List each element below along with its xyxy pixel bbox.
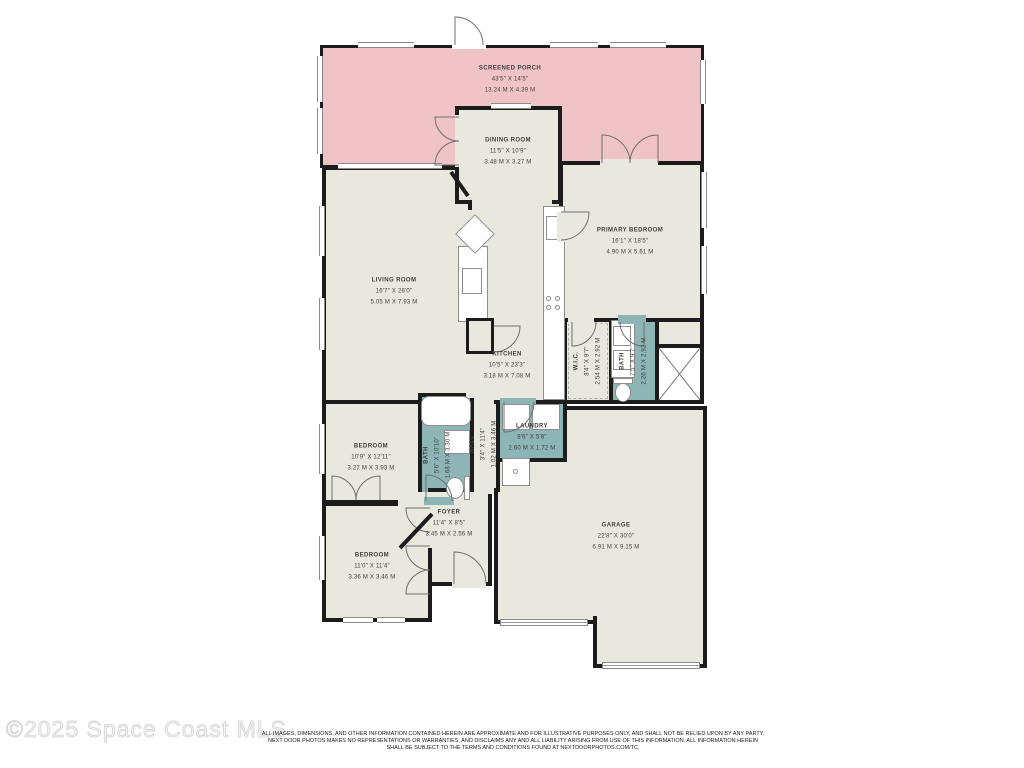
water-heater-valve: [513, 469, 518, 474]
label-dining-room: DINING ROOM 11'5" X 10'9" 3.48 M X 3.27 …: [438, 137, 578, 168]
label-garage: GARAGE 22'8" X 30'0" 6.91 M X 9.15 M: [546, 522, 686, 553]
disclaimer-line1: ALL IMAGES, DIMENSIONS, AND OTHER INFORM…: [253, 731, 773, 738]
window: [319, 206, 325, 256]
window: [358, 42, 414, 48]
window: [317, 56, 323, 102]
doorway-front-door: [452, 580, 486, 588]
label-primary-bath: BATH 7'5" X 9'7" 2.26 M X 2.92 M: [619, 316, 650, 406]
label-hall: HALL 3'4" X 11'4" 1.02 M X 3.46 M: [469, 399, 500, 489]
window: [550, 42, 598, 48]
island-sink: [462, 268, 482, 294]
window: [701, 246, 707, 294]
disclaimer-line2: NEXT DOOR PHOTOS MAKES NO REPRESENTATION…: [253, 738, 773, 745]
pantry-closet: [466, 318, 494, 354]
window: [491, 103, 531, 109]
disclaimer-text: ALL IMAGES, DIMENSIONS, AND OTHER INFORM…: [253, 731, 773, 752]
disclaimer-line3: SHALL BE SUBJECT TO THE TERMS AND CONDIT…: [253, 745, 773, 752]
cooktop-burner: [555, 305, 560, 310]
cooktop-burner: [546, 305, 551, 310]
label-foyer: FOYER 11'4" X 8'5" 3.45 M X 2.56 M: [379, 509, 519, 540]
label-living-room: LIVING ROOM 16'7" X 26'0" 5.05 M X 7.93 …: [324, 277, 464, 308]
window: [701, 172, 707, 228]
window: [700, 60, 706, 104]
opening-dining-kitchen: [472, 196, 552, 208]
shower-stall: [655, 344, 704, 404]
doorway-laundry: [500, 398, 536, 404]
window: [377, 617, 405, 623]
label-screened-porch: SCREENED PORCH 43'5" X 14'5" 13.24 M X 4…: [440, 65, 580, 96]
cooktop-burner: [546, 296, 551, 301]
garage-door: [602, 662, 700, 669]
label-kitchen: KITCHEN 10'5" X 23'3" 3.18 M X 7.08 M: [437, 351, 577, 382]
doorway-primary-porch: [600, 159, 658, 167]
window: [317, 108, 323, 154]
window: [338, 163, 442, 169]
doorway-bedroom1: [398, 498, 418, 506]
opening-garage-sections: [597, 612, 703, 624]
label-primary-bedroom: PRIMARY BEDROOM 16'1" X 18'5" 4.90 M X 5…: [560, 227, 700, 258]
window: [610, 42, 666, 48]
floor-plan-image: SCREENED PORCH 43'5" X 14'5" 13.24 M X 4…: [0, 0, 1024, 768]
window: [343, 617, 373, 623]
label-bedroom2: BEDROOM 11'0" X 11'4" 3.36 M X 3.46 M: [302, 552, 442, 583]
doorway-porch-screen-door: [452, 43, 486, 49]
mls-watermark: ©2025 Space Coast MLS: [6, 716, 287, 743]
garage-door: [500, 619, 588, 626]
label-bedroom1: BEDROOM 10'9" X 12'11" 3.27 M X 3.93 M: [301, 443, 441, 474]
label-wic: W.I.C. 8'4" X 9'7" 2.54 M X 2.92 M: [573, 316, 604, 406]
cooktop-burner: [555, 296, 560, 301]
